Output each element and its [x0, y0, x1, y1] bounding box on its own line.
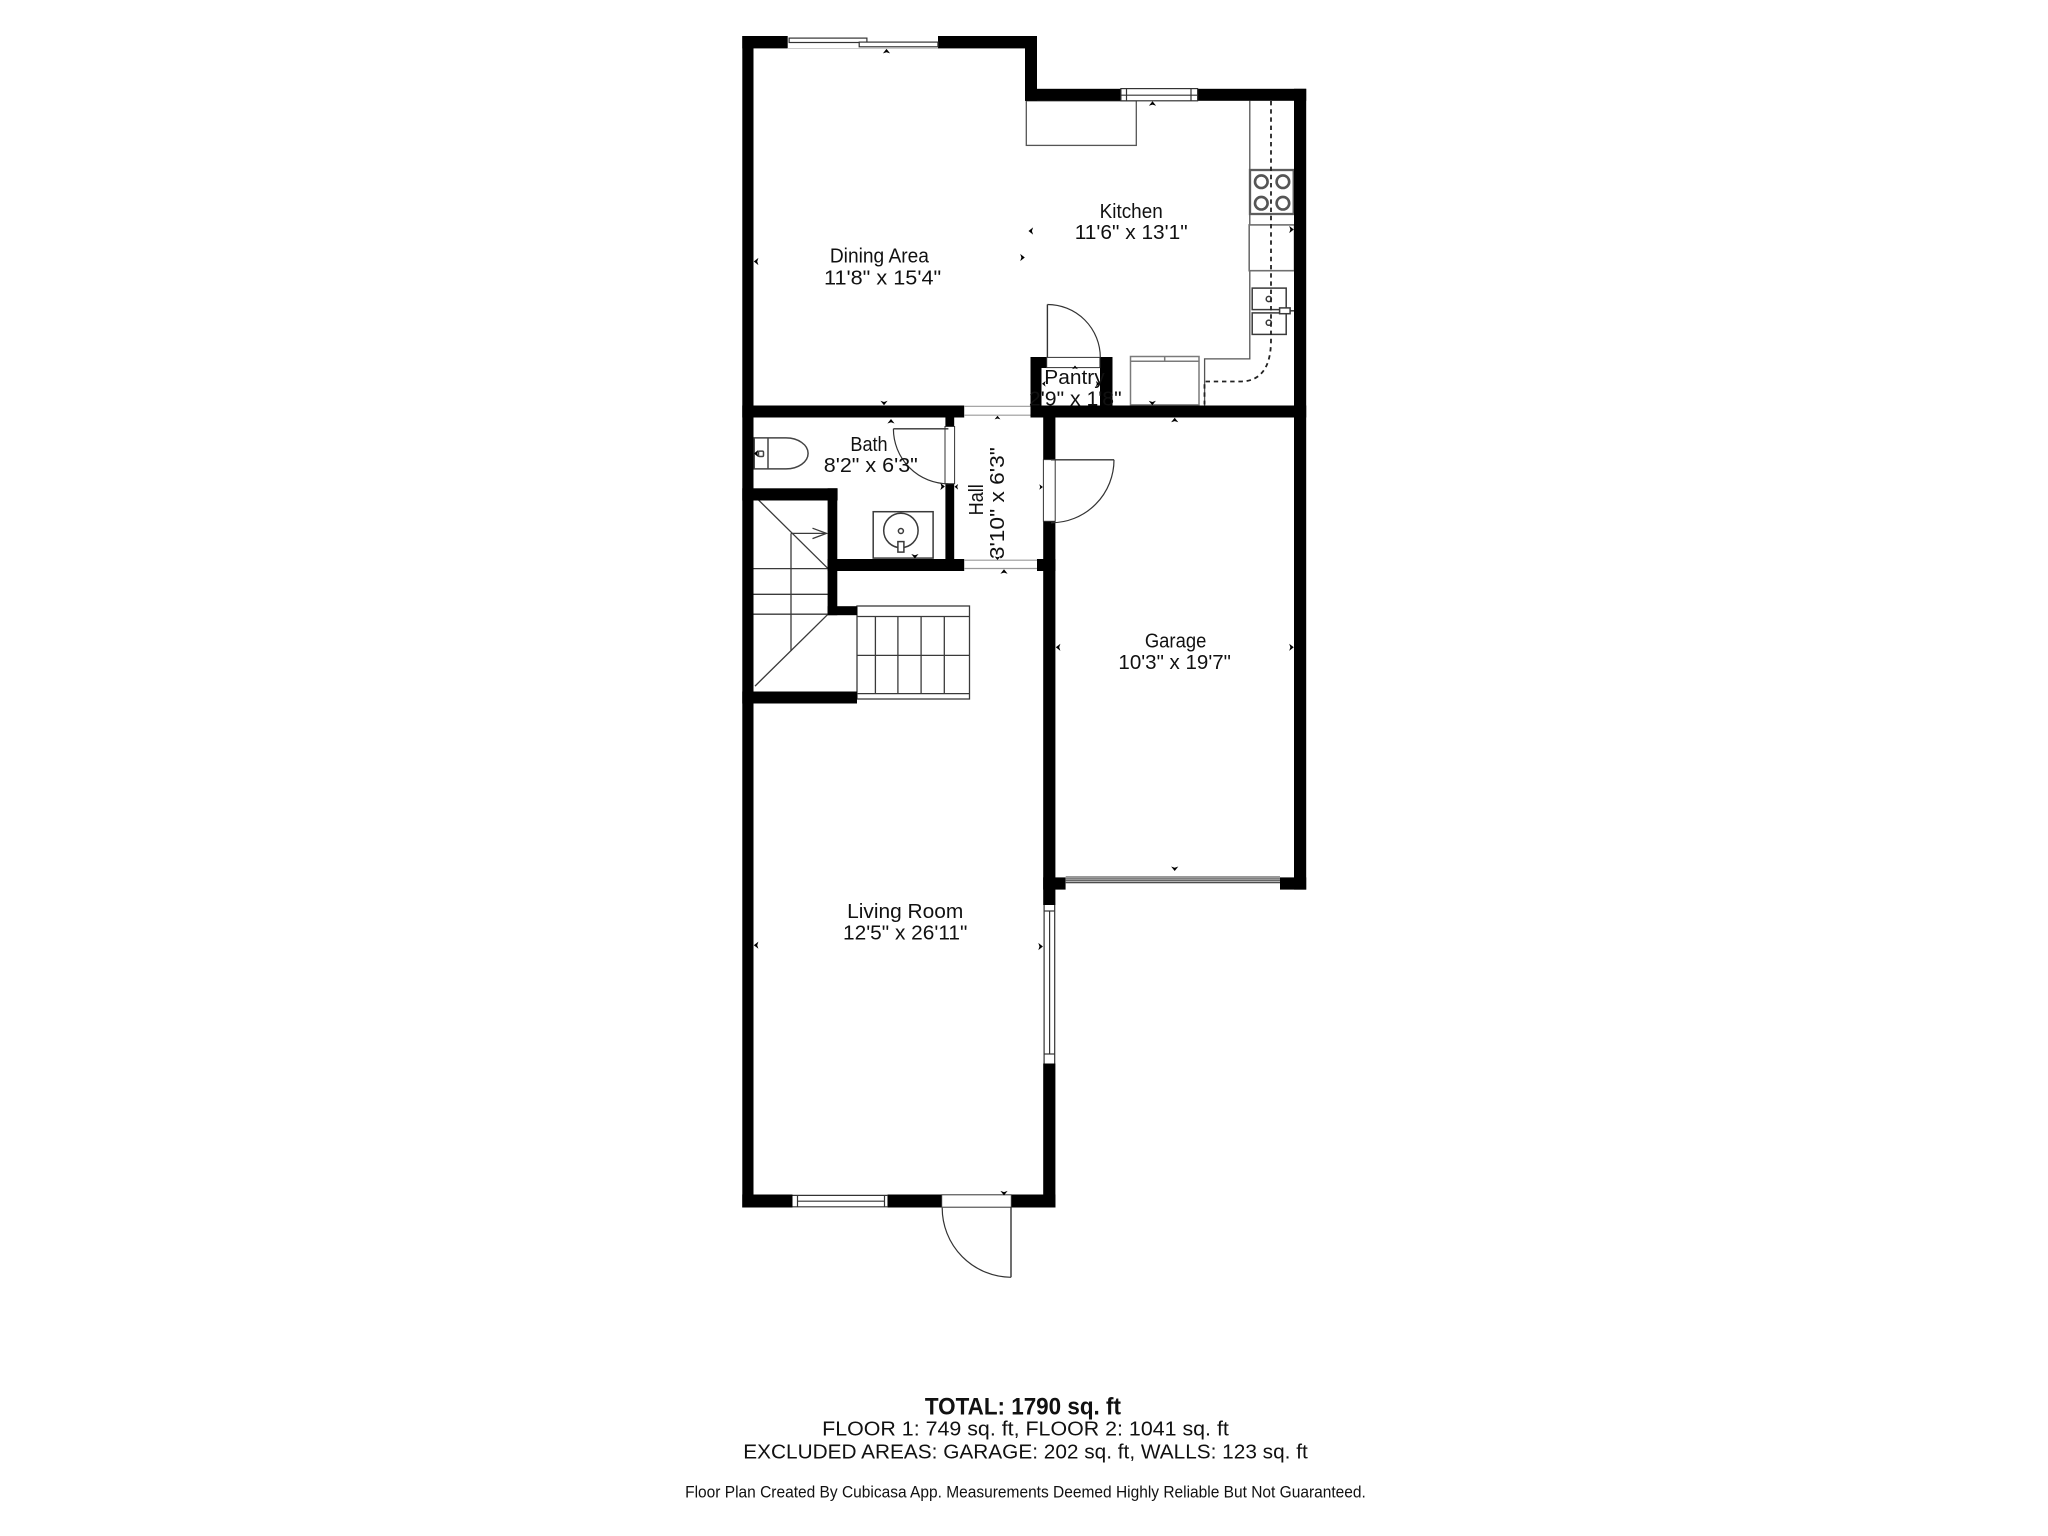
svg-text:11'8" x 15'4": 11'8" x 15'4" — [824, 268, 941, 290]
svg-text:11'6" x 13'1": 11'6" x 13'1" — [1075, 222, 1188, 244]
svg-text:3'10" x 6'3": 3'10" x 6'3" — [987, 447, 1009, 559]
svg-text:Garage: Garage — [1145, 631, 1207, 653]
svg-text:Dining Area: Dining Area — [830, 246, 930, 268]
svg-text:Living Room: Living Room — [847, 901, 963, 923]
svg-text:10'3" x 19'7": 10'3" x 19'7" — [1118, 652, 1231, 674]
svg-text:EXCLUDED AREAS: GARAGE: 202 sq: EXCLUDED AREAS: GARAGE: 202 sq. ft, WALL… — [743, 1441, 1308, 1463]
svg-text:Bath: Bath — [850, 434, 887, 456]
svg-text:FLOOR 1: 749 sq. ft, FLOOR 2:: FLOOR 1: 749 sq. ft, FLOOR 2: 1041 sq. f… — [822, 1419, 1229, 1441]
svg-text:8'2" x 6'3": 8'2" x 6'3" — [824, 455, 918, 477]
svg-text:Kitchen: Kitchen — [1100, 201, 1163, 223]
svg-text:12'5" x 26'11": 12'5" x 26'11" — [843, 923, 967, 945]
svg-text:Pantry: Pantry — [1044, 367, 1104, 389]
svg-text:Floor Plan Created By Cubicasa: Floor Plan Created By Cubicasa App. Meas… — [685, 1483, 1366, 1501]
svg-text:2'9" x 1'8": 2'9" x 1'8" — [1029, 389, 1122, 411]
svg-text:Hall: Hall — [966, 484, 988, 515]
svg-text:TOTAL: 1790 sq. ft: TOTAL: 1790 sq. ft — [925, 1393, 1121, 1420]
